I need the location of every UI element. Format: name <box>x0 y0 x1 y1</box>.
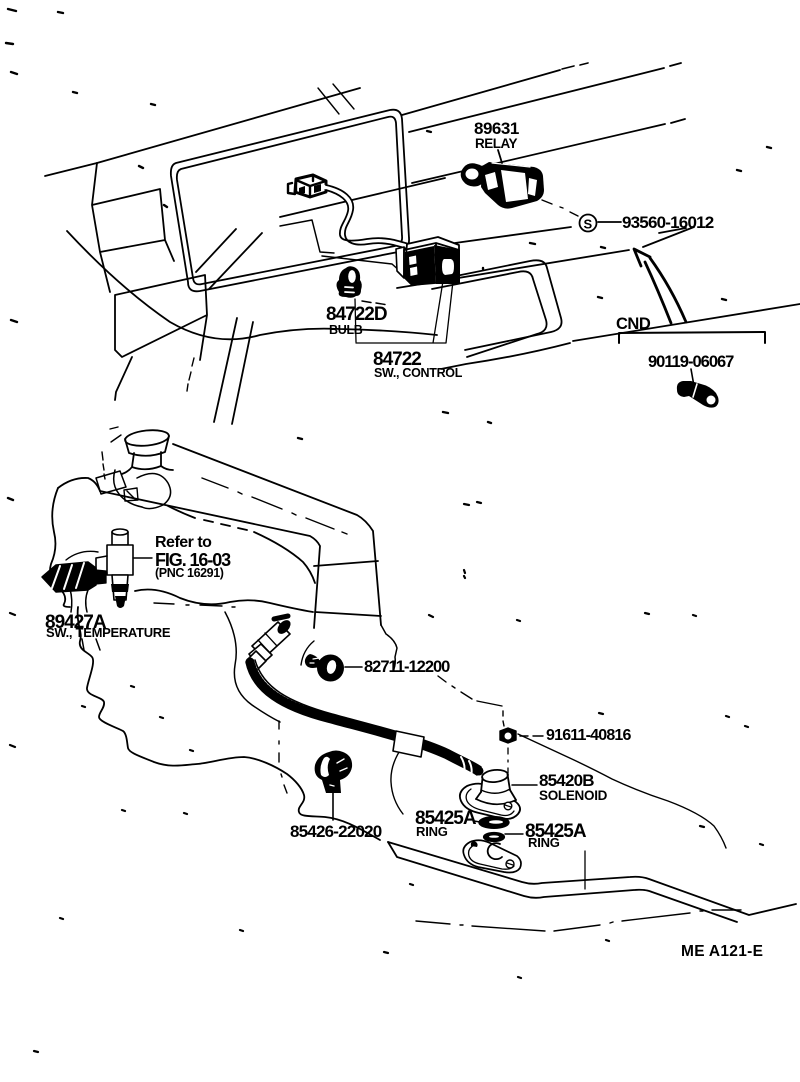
svg-text:93560-16012: 93560-16012 <box>622 213 714 232</box>
svg-text:SW., TEMPERATURE: SW., TEMPERATURE <box>46 625 171 640</box>
svg-text:S: S <box>584 217 593 232</box>
svg-text:SOLENOID: SOLENOID <box>539 788 608 803</box>
svg-text:CND: CND <box>616 315 651 333</box>
svg-text:RING: RING <box>416 824 448 839</box>
svg-text:Refer to: Refer to <box>155 534 212 551</box>
svg-text:RELAY: RELAY <box>475 136 518 151</box>
svg-text:91611-40816: 91611-40816 <box>546 727 632 744</box>
svg-text:(PNC 16291): (PNC 16291) <box>155 566 224 580</box>
svg-text:BULB: BULB <box>329 323 363 337</box>
svg-text:85426-22020: 85426-22020 <box>290 822 382 841</box>
svg-text:ME A121-E: ME A121-E <box>681 943 763 960</box>
svg-text:84722D: 84722D <box>326 304 387 325</box>
svg-text:82711-12200: 82711-12200 <box>364 658 450 676</box>
svg-text:RING: RING <box>528 835 560 850</box>
svg-text:SW., CONTROL: SW., CONTROL <box>374 366 463 380</box>
